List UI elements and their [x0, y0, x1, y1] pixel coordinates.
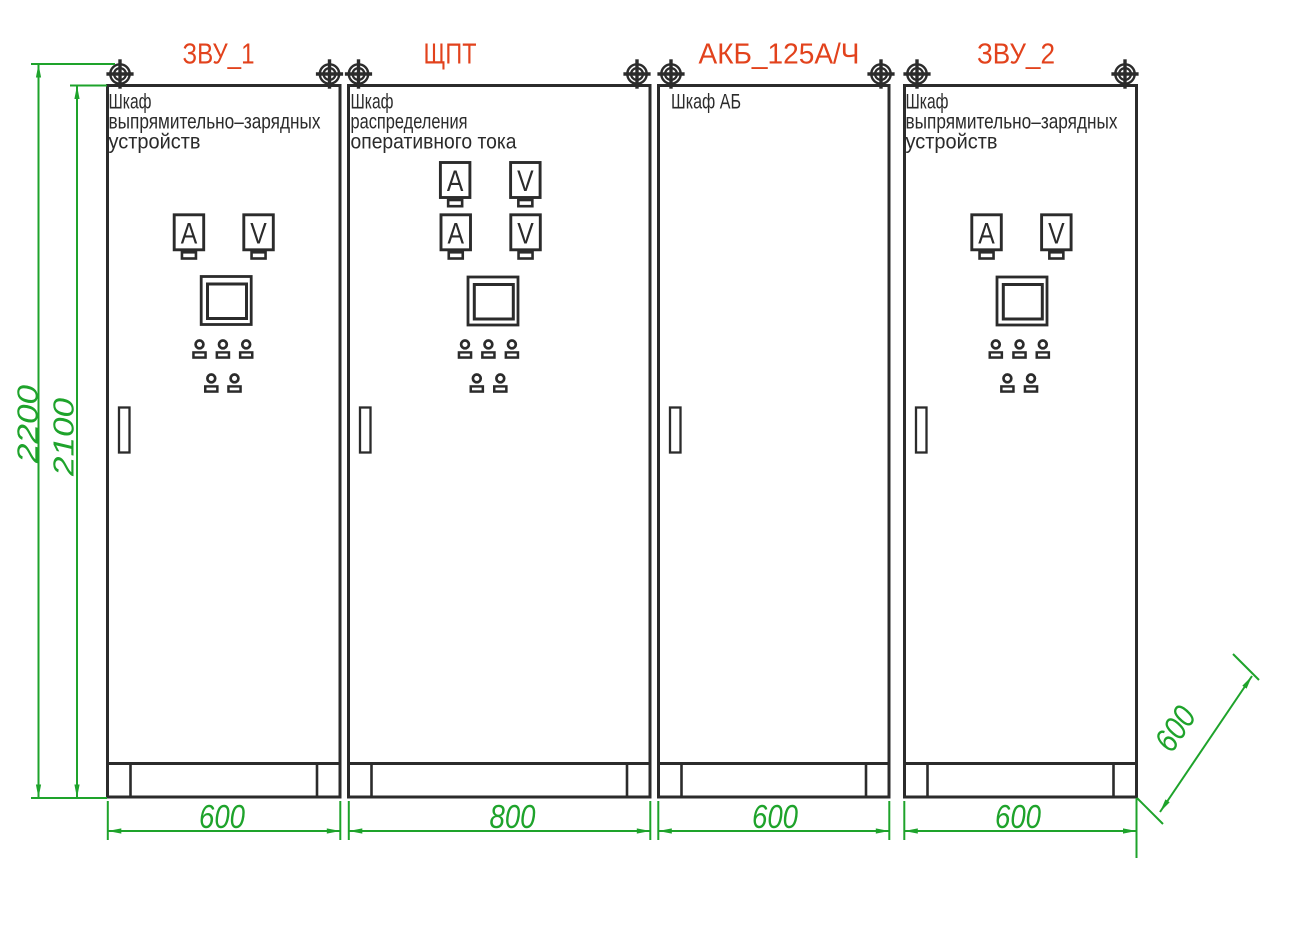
svg-text:2100: 2100	[49, 398, 81, 477]
svg-text:Шкаф АБ: Шкаф АБ	[671, 91, 741, 114]
svg-text:оперативного тока: оперативного тока	[351, 131, 517, 154]
svg-text:A: A	[448, 217, 465, 250]
svg-text:устройств: устройств	[109, 131, 201, 154]
svg-text:600: 600	[199, 798, 246, 835]
svg-text:2200: 2200	[13, 385, 45, 464]
svg-text:ЗВУ_1: ЗВУ_1	[183, 39, 255, 71]
svg-text:A: A	[447, 165, 464, 198]
svg-text:V: V	[517, 217, 534, 250]
svg-text:устройств: устройств	[906, 131, 998, 154]
svg-text:800: 800	[490, 798, 537, 835]
svg-text:АКБ_125А/Ч: АКБ_125А/Ч	[699, 39, 860, 71]
svg-text:600: 600	[995, 798, 1042, 835]
svg-text:ЩПТ: ЩПТ	[424, 39, 477, 71]
svg-text:V: V	[1048, 217, 1065, 250]
svg-text:A: A	[181, 217, 198, 250]
svg-text:V: V	[250, 217, 267, 250]
svg-text:600: 600	[752, 798, 799, 835]
svg-text:A: A	[978, 217, 995, 250]
svg-text:V: V	[517, 165, 534, 198]
svg-text:ЗВУ_2: ЗВУ_2	[977, 39, 1055, 71]
